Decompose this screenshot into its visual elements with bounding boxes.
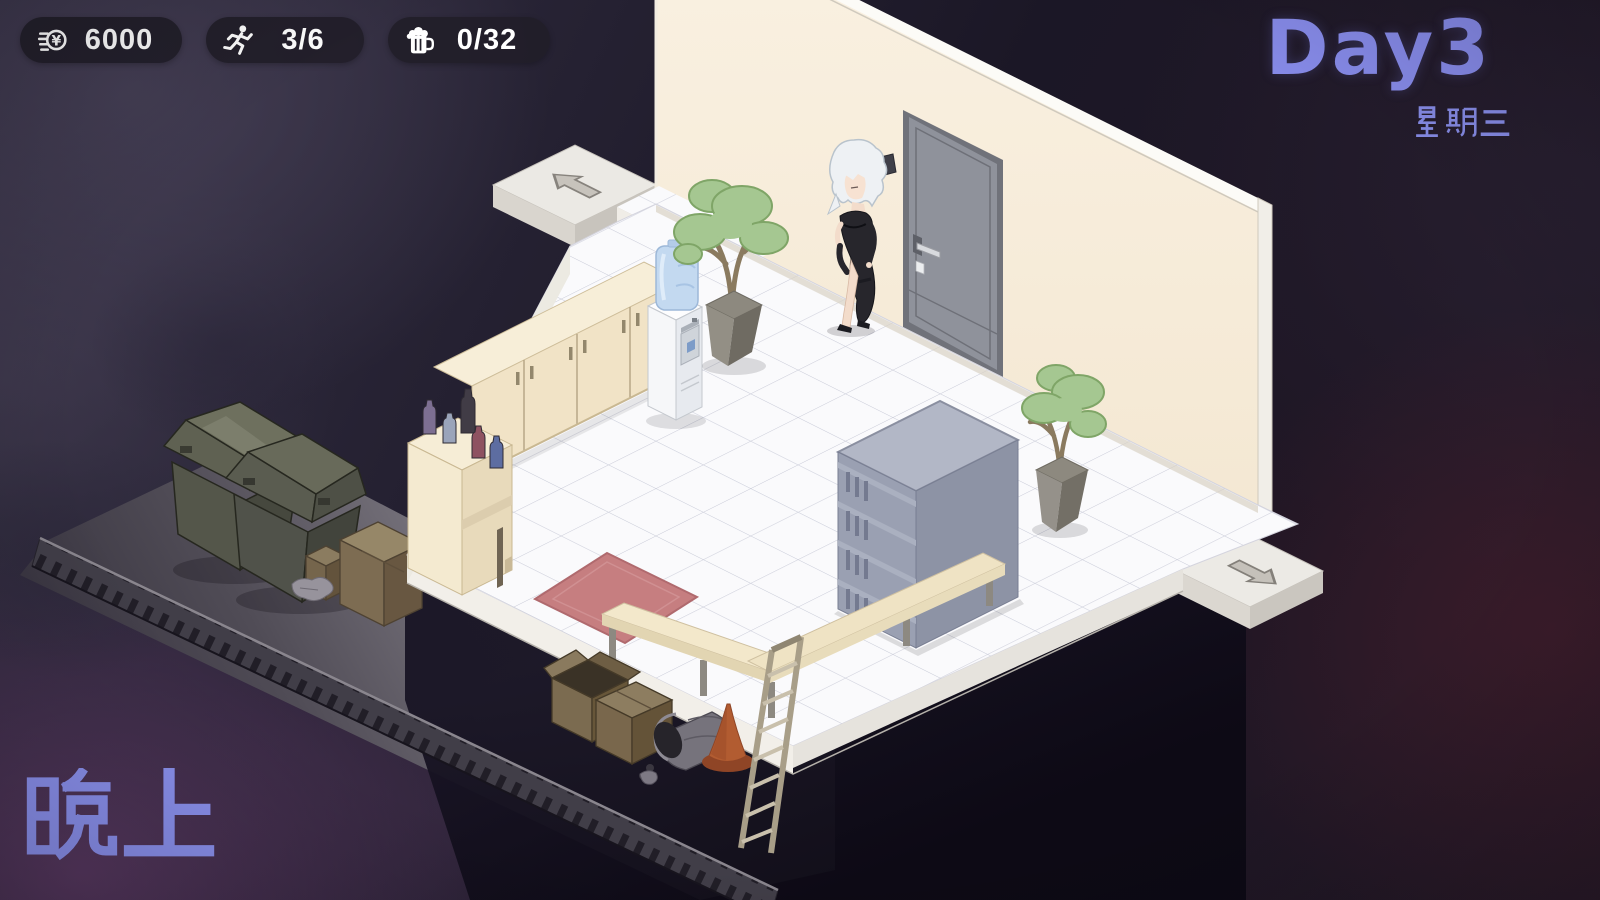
weekday-glyphs [1410,104,1512,140]
money-value: 6000 [80,26,162,55]
game-scene [0,0,1600,900]
energy-value: 3/6 [266,26,344,55]
beer-mug-icon [404,24,436,56]
beer-counter: 0/32 [388,17,550,63]
beer-value: 0/32 [448,26,530,55]
energy-counter: 3/6 [206,17,364,63]
runner-icon [222,24,254,56]
money-counter: ¥ 6000 [20,17,182,63]
day-indicator: Day3 [1266,10,1492,86]
time-of-day-glyphs [24,768,220,866]
game-screen: { "hud": { "money": { "icon": "yen-coin-… [0,0,1600,900]
yen-coin-icon: ¥ [36,24,68,56]
day-label: Day3 [1266,10,1492,86]
svg-text:¥: ¥ [51,33,61,49]
hud-bar: ¥ 6000 3/6 0/32 [20,17,550,63]
